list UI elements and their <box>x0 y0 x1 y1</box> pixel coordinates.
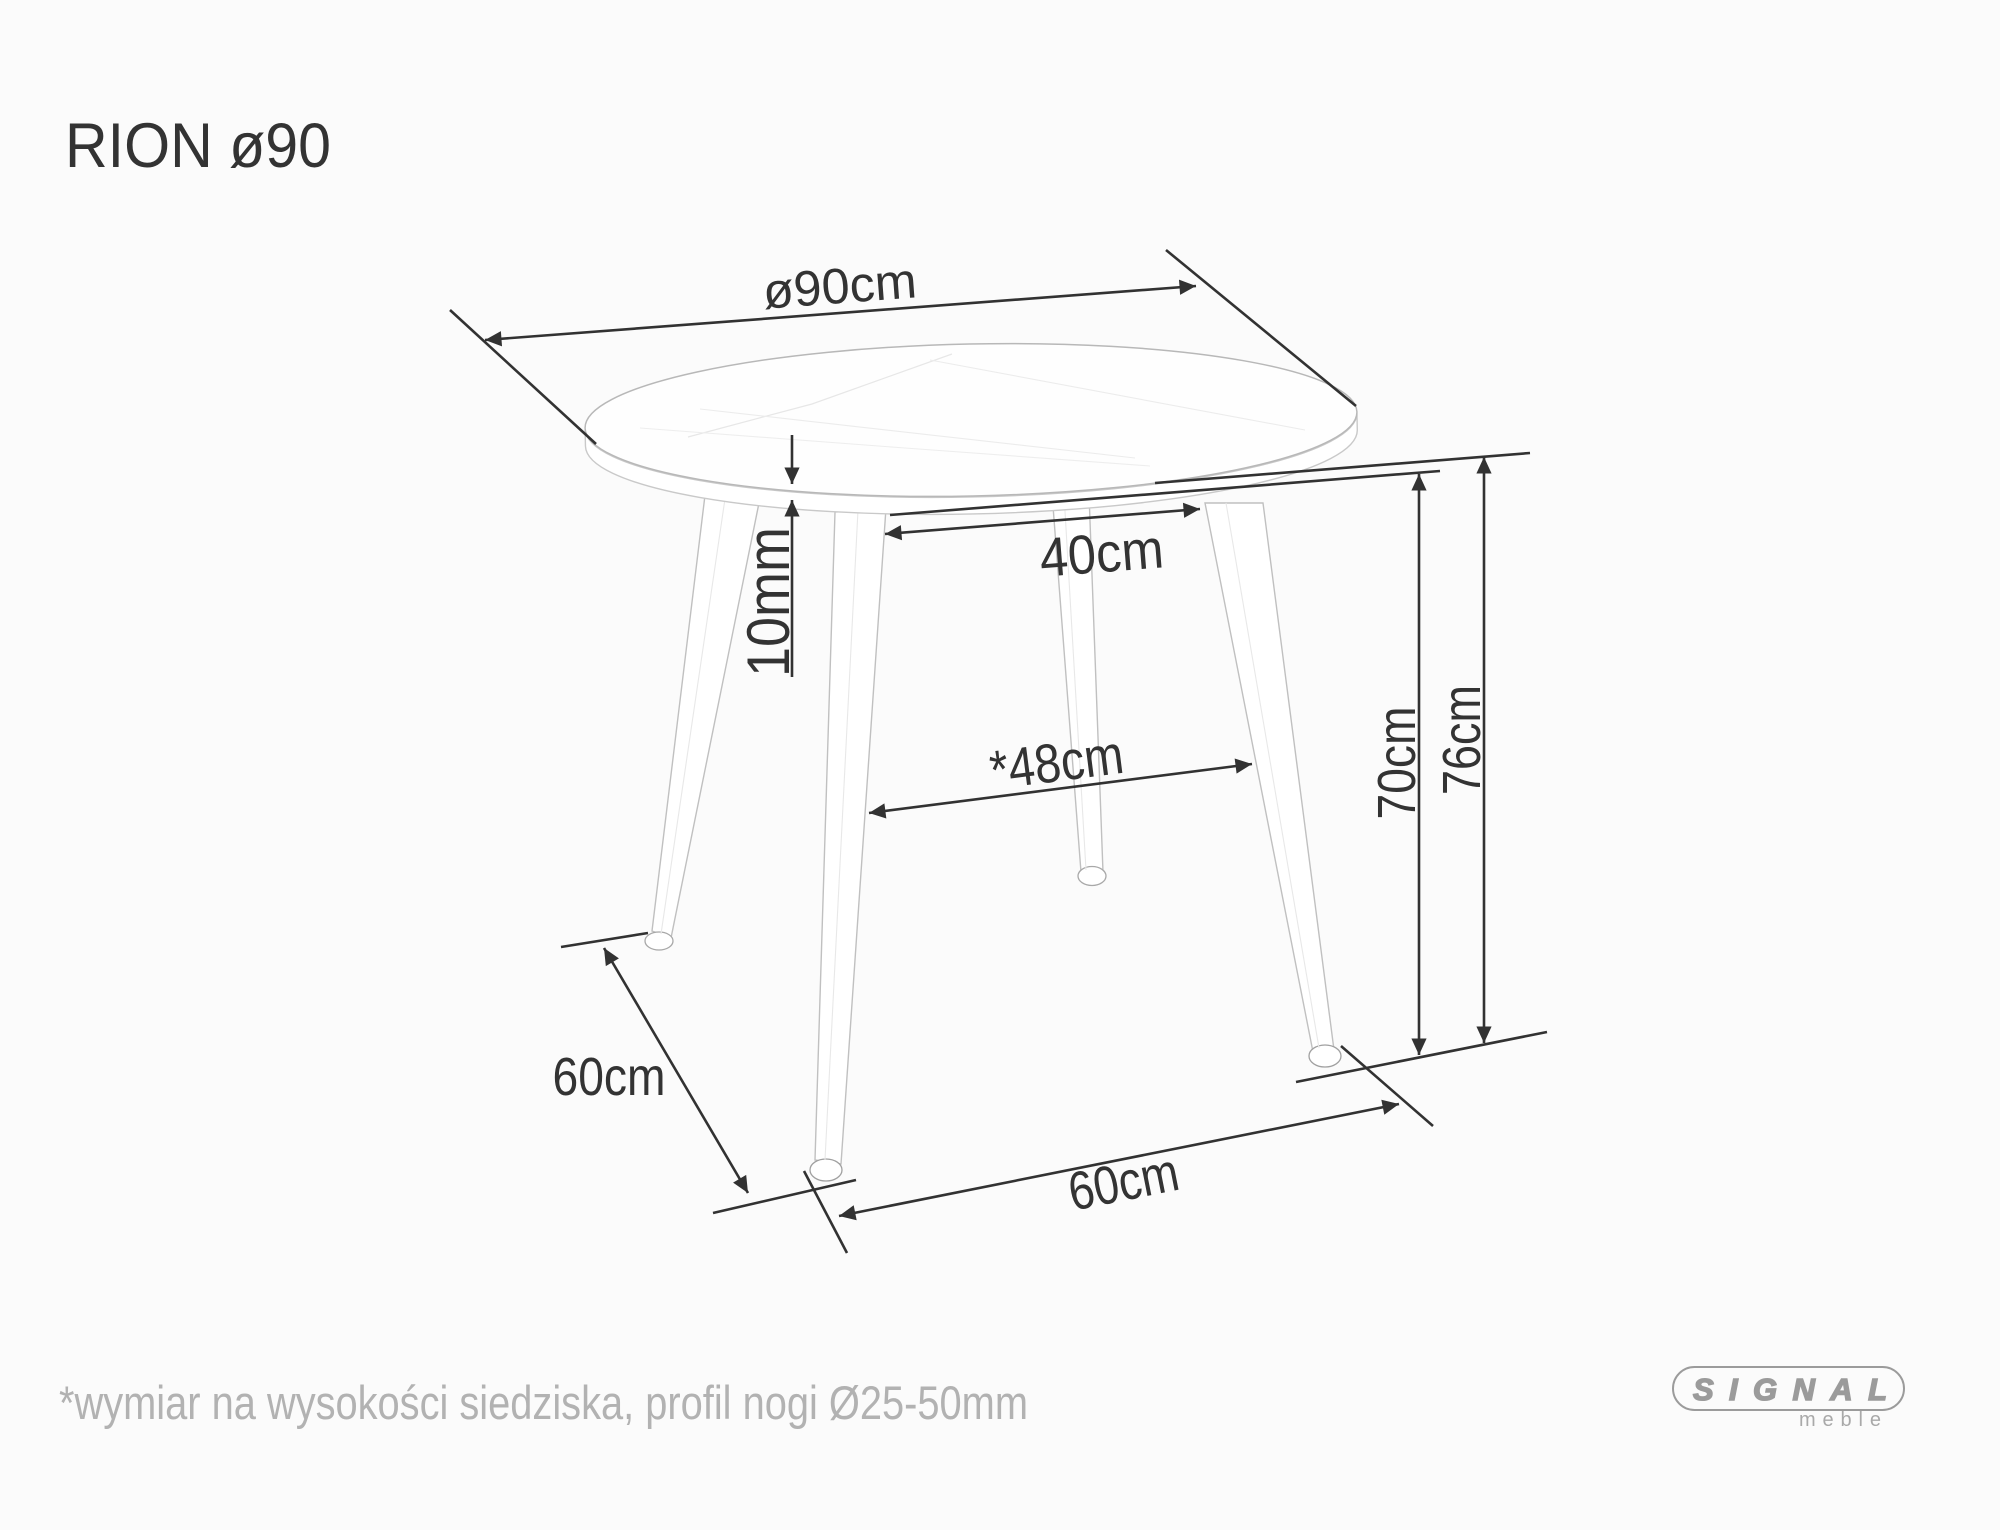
svg-text:*wymiar na wysokości siedziska: *wymiar na wysokości siedziska, profil n… <box>59 1376 1028 1429</box>
svg-text:60cm: 60cm <box>553 1047 666 1107</box>
svg-text:40cm: 40cm <box>1037 517 1165 589</box>
svg-text:ø90cm: ø90cm <box>761 252 919 319</box>
svg-text:10mm: 10mm <box>735 527 802 677</box>
svg-text:RION ø90: RION ø90 <box>65 111 331 181</box>
svg-text:70cm: 70cm <box>1367 707 1427 820</box>
svg-text:76cm: 76cm <box>1432 685 1492 795</box>
